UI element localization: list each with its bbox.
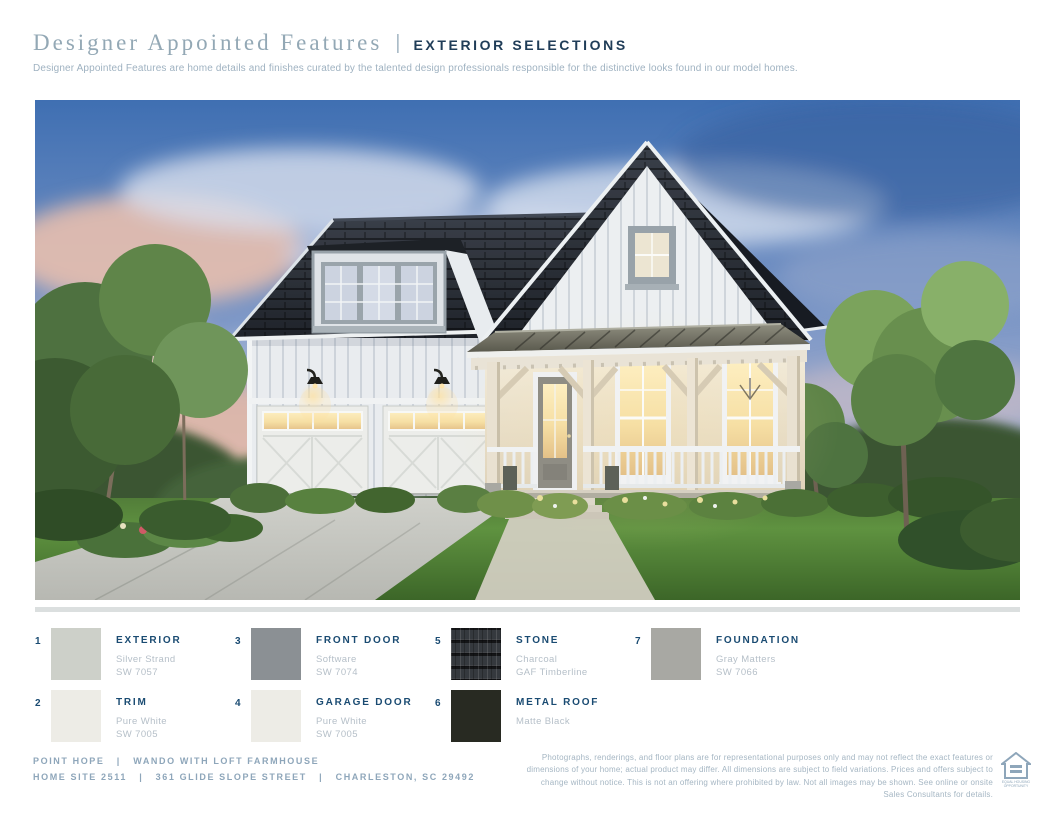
- color-swatch: [651, 628, 701, 680]
- page-description: Designer Appointed Features are home det…: [33, 63, 1023, 74]
- color-name: Gray Matters: [716, 654, 776, 665]
- dormer-windows: [325, 266, 433, 320]
- color-code: SW 7057: [116, 667, 158, 678]
- planter: [605, 466, 619, 490]
- legend-item-garage-door: 4 GARAGE DOOR Pure WhiteSW 7005: [235, 690, 435, 752]
- color-code: GAF Timberline: [516, 667, 588, 678]
- item-label: EXTERIOR: [116, 635, 182, 646]
- page-subtitle: EXTERIOR SELECTIONS: [413, 37, 627, 53]
- color-swatch: [51, 690, 101, 742]
- section-divider: [35, 607, 1020, 612]
- item-label: FOUNDATION: [716, 635, 800, 646]
- equal-housing-opportunity-icon: EQUAL HOUSING OPPORTUNITY: [1001, 752, 1031, 788]
- color-swatch: [251, 690, 301, 742]
- disclaimer-text: Photographs, renderings, and floor plans…: [521, 752, 993, 802]
- color-name: Software: [316, 654, 357, 665]
- legend-item-front-door: 3 FRONT DOOR SoftwareSW 7074: [235, 628, 435, 690]
- svg-text:OPPORTUNITY: OPPORTUNITY: [1004, 784, 1029, 788]
- item-number: 7: [635, 628, 651, 647]
- item-number: 4: [235, 690, 251, 709]
- community-line: POINT HOPE | WANDO WITH LOFT FARMHOUSE: [33, 757, 475, 766]
- legend-item-trim: 2 TRIM Pure WhiteSW 7005: [35, 690, 235, 752]
- community-info: POINT HOPE | WANDO WITH LOFT FARMHOUSE H…: [33, 757, 475, 782]
- legend-item-foundation: 7 FOUNDATION Gray MattersSW 7066: [635, 628, 835, 690]
- home-exterior-rendering: [35, 100, 1020, 600]
- header: Designer Appointed Features | EXTERIOR S…: [33, 30, 1023, 74]
- color-code: SW 7005: [316, 729, 358, 740]
- item-label: STONE: [516, 635, 588, 646]
- item-label: FRONT DOOR: [316, 635, 401, 646]
- item-label: TRIM: [116, 697, 167, 708]
- item-label: METAL ROOF: [516, 697, 599, 708]
- item-number: 6: [435, 690, 451, 709]
- color-name: Charcoal: [516, 654, 557, 665]
- address-line: HOME SITE 2511 | 361 GLIDE SLOPE STREET …: [33, 773, 475, 782]
- page-title: Designer Appointed Features: [33, 30, 382, 56]
- planter: [503, 466, 517, 490]
- title-separator: |: [395, 32, 400, 55]
- legend-item-exterior: 1 EXTERIOR Silver StrandSW 7057: [35, 628, 235, 690]
- item-number: 5: [435, 628, 451, 647]
- front-door: [533, 372, 577, 490]
- item-number: 2: [35, 690, 51, 709]
- color-name: Silver Strand: [116, 654, 176, 665]
- color-code: SW 7066: [716, 667, 758, 678]
- legend-item-metal-roof: 6 METAL ROOF Matte Black: [435, 690, 635, 752]
- selections-legend: 1 EXTERIOR Silver StrandSW 7057 3 FRONT …: [35, 628, 835, 752]
- legend-item-stone: 5 STONE CharcoalGAF Timberline: [435, 628, 635, 690]
- legend-empty-cell: [635, 690, 835, 752]
- title-row: Designer Appointed Features | EXTERIOR S…: [33, 30, 1023, 56]
- item-label: GARAGE DOOR: [316, 697, 412, 708]
- color-name: Pure White: [116, 716, 167, 727]
- attic-window: [625, 226, 679, 290]
- porch-metal-roof: [467, 324, 810, 370]
- color-swatch: [451, 690, 501, 742]
- color-swatch: [51, 628, 101, 680]
- material-swatch: [451, 628, 501, 680]
- item-number: 3: [235, 628, 251, 647]
- color-code: SW 7005: [116, 729, 158, 740]
- color-name: Matte Black: [516, 716, 570, 727]
- color-swatch: [251, 628, 301, 680]
- page: Designer Appointed Features | EXTERIOR S…: [0, 0, 1055, 815]
- color-code: SW 7074: [316, 667, 358, 678]
- color-name: Pure White: [316, 716, 367, 727]
- item-number: 1: [35, 628, 51, 647]
